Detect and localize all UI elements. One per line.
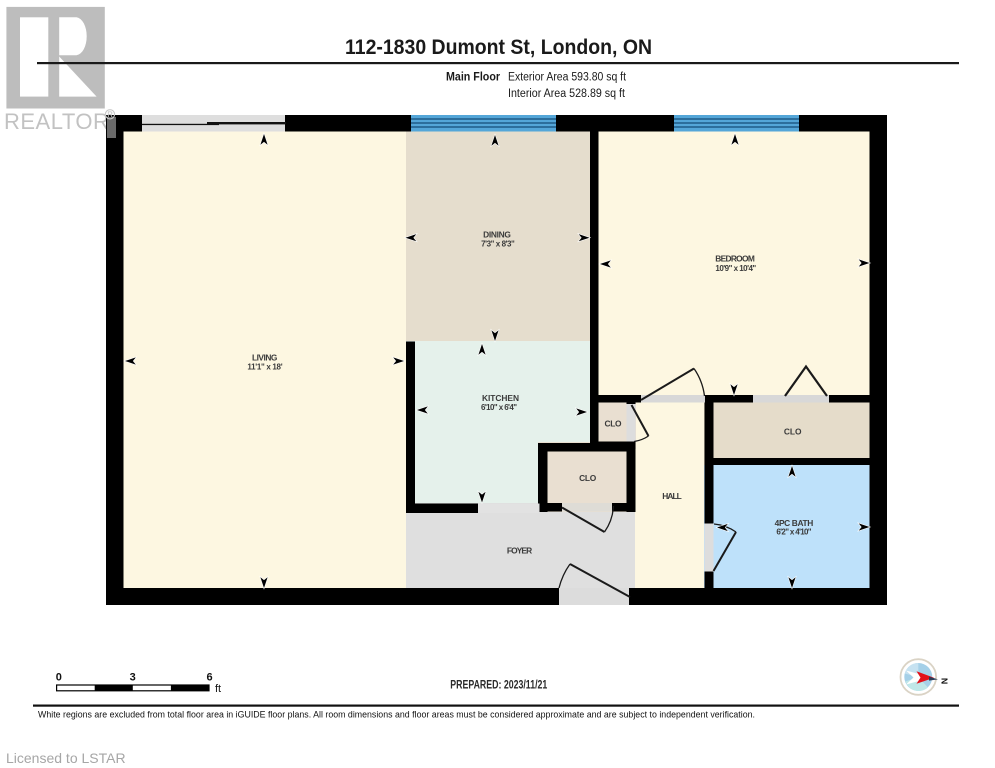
svg-text:3: 3 (130, 671, 136, 683)
svg-text:Main Floor: Main Floor (446, 72, 500, 84)
svg-text:N: N (940, 678, 950, 684)
svg-text:0: 0 (56, 671, 62, 683)
svg-text:Interior Area 528.89 sq ft: Interior Area 528.89 sq ft (508, 88, 626, 100)
svg-text:CLO: CLO (579, 473, 597, 483)
svg-text:11'1" x 18': 11'1" x 18' (247, 363, 282, 372)
svg-text:DINING: DINING (483, 230, 511, 240)
svg-text:Licensed to LSTAR: Licensed to LSTAR (6, 750, 126, 766)
svg-text:White regions are excluded fro: White regions are excluded from total fl… (38, 710, 755, 720)
svg-text:CLO: CLO (604, 419, 622, 429)
svg-text:4PC BATH: 4PC BATH (775, 518, 814, 528)
svg-text:REALTOR: REALTOR (4, 109, 109, 134)
svg-text:KITCHEN: KITCHEN (482, 393, 519, 403)
svg-text:6'2" x 4'10": 6'2" x 4'10" (776, 527, 811, 536)
svg-text:7'3" x 8'3": 7'3" x 8'3" (481, 239, 515, 248)
svg-text:BEDROOM: BEDROOM (715, 253, 755, 263)
svg-text:ft: ft (215, 683, 221, 695)
svg-text:10'9" x 10'4": 10'9" x 10'4" (715, 264, 756, 273)
svg-text:FOYER: FOYER (507, 546, 532, 556)
svg-text:HALL: HALL (662, 491, 682, 501)
svg-text:6'10" x 6'4": 6'10" x 6'4" (481, 403, 517, 412)
svg-text:PREPARED: 2023/11/21: PREPARED: 2023/11/21 (450, 678, 547, 692)
svg-text:CLO: CLO (784, 426, 802, 436)
svg-text:LIVING: LIVING (252, 352, 277, 362)
svg-text:Exterior Area 593.80 sq ft: Exterior Area 593.80 sq ft (508, 72, 627, 84)
svg-text:112-1830 Dumont St, London, ON: 112-1830 Dumont St, London, ON (345, 35, 652, 59)
svg-text:6: 6 (206, 671, 212, 683)
